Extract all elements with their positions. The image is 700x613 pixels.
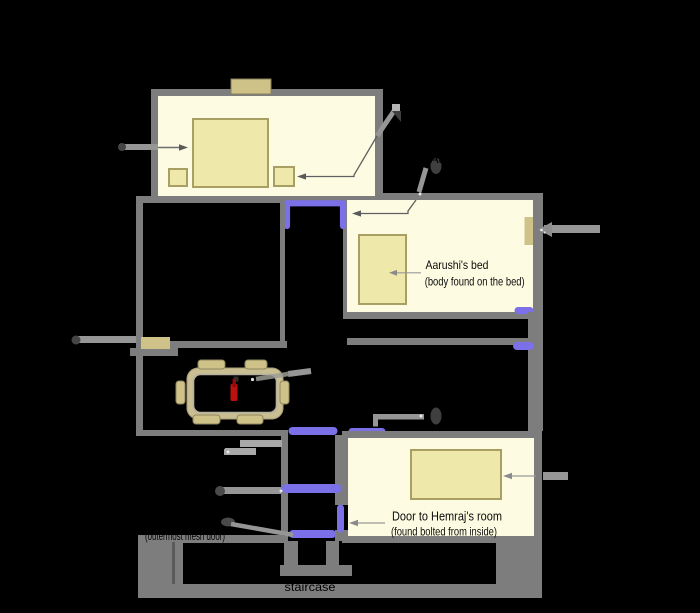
svg-text:staircase: staircase	[285, 580, 336, 594]
svg-text:(body found on the bed): (body found on the bed)	[425, 276, 525, 289]
svg-text:grill door: grill door	[150, 483, 201, 498]
svg-text:(found bolted from inside): (found bolted from inside)	[391, 526, 497, 539]
svg-text:Aarushi's bed: Aarushi's bed	[426, 258, 489, 272]
svg-text:wooden door: wooden door	[149, 443, 226, 458]
svg-text:bedside table: bedside table	[402, 96, 479, 111]
svg-text:(outermost mesh door): (outermost mesh door)	[145, 529, 225, 543]
svg-text:Aarushi's door: Aarushi's door	[430, 151, 513, 166]
svg-text:toilet: toilet	[20, 331, 48, 346]
svg-text:Hemraj's bed: Hemraj's bed	[572, 468, 648, 483]
svg-text:window: window	[601, 219, 646, 234]
svg-text:door: door	[444, 408, 471, 423]
svg-text:Door to Hemraj's room: Door to Hemraj's room	[392, 509, 502, 524]
svg-text:Talwars' bed: Talwars' bed	[40, 139, 112, 154]
svg-text:dining table: dining table	[315, 366, 382, 381]
